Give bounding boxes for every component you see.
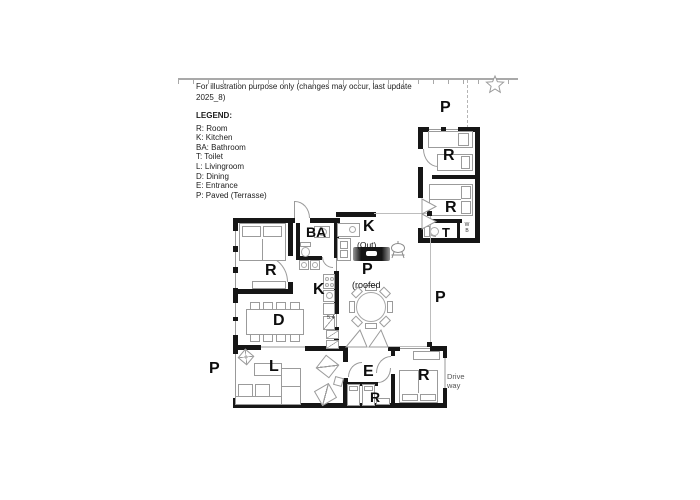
floor-plan-canvas: For illustration purpose only (changes m… (0, 0, 700, 500)
bedroom-right-label: R (418, 368, 430, 384)
burner (325, 277, 329, 281)
door-leaf (294, 201, 295, 218)
legend-item: P: Paved (Terrasse) (196, 191, 267, 201)
toilet-bowl (430, 227, 439, 236)
paved-label-top: P (440, 100, 451, 116)
sofa-back (235, 396, 285, 405)
counter-unit (340, 250, 348, 258)
wall-segment (432, 175, 475, 179)
sofa-seat (238, 384, 253, 397)
annotation-line: For illustration purpose only (changes m… (196, 82, 446, 93)
terrace-post (427, 342, 432, 347)
legend-item: K: Kitchen (196, 133, 267, 143)
pillow (402, 394, 418, 401)
pillow (263, 226, 282, 237)
annotation-line: 2025_8) (196, 93, 446, 104)
counter-unit (340, 241, 348, 249)
room-label-annex-toilet: T (442, 226, 450, 239)
driveway-line: Drive (447, 372, 465, 381)
closet-label: W B (463, 222, 471, 234)
sink-basin (349, 226, 356, 233)
chair (276, 302, 286, 310)
window (233, 231, 238, 246)
paved-label-left: P (209, 361, 220, 377)
dining-label: D (273, 313, 285, 329)
wall-segment (391, 374, 395, 408)
driveway-label: Drive way (447, 372, 465, 390)
utility-box (326, 340, 339, 349)
wall-segment (457, 221, 460, 240)
window (233, 252, 238, 267)
legend-item: L: Livingroom (196, 162, 267, 172)
room-label-annex-r2: R (445, 200, 457, 216)
wall-segment (233, 289, 293, 294)
entrance-label: E (363, 364, 374, 380)
pillow (461, 186, 471, 199)
boundary-dashed-line (467, 80, 468, 128)
burner (325, 283, 329, 287)
chair (349, 301, 355, 313)
round-table (356, 292, 386, 322)
legend-item: D: Dining (196, 172, 267, 182)
burner (330, 283, 334, 287)
lamp (238, 349, 255, 366)
paved-label-right: P (435, 290, 446, 306)
door-arc (348, 362, 362, 377)
terrace-note: (roofed (352, 281, 381, 290)
chair (250, 334, 260, 342)
pillow (461, 156, 470, 169)
entrance-door-leaf (369, 330, 388, 347)
washer-drum (301, 262, 307, 268)
wall-segment (233, 289, 238, 349)
door-arc (423, 149, 438, 167)
terrace-edge (388, 346, 431, 347)
chair (387, 301, 393, 313)
burner (330, 277, 334, 281)
living-label: L (269, 359, 279, 375)
wall-segment (418, 228, 423, 243)
toilet-bowl (301, 247, 310, 257)
chair (263, 302, 273, 310)
legend-item: E: Entrance (196, 181, 267, 191)
annotation: For illustration purpose only (changes m… (196, 82, 446, 103)
washer-drum (312, 262, 318, 268)
room-label-annex-r1: R (443, 148, 455, 164)
wall-segment (288, 218, 293, 256)
kitchen-label: K (313, 282, 325, 298)
pillow (242, 226, 261, 237)
chair (290, 302, 300, 310)
wall-segment (288, 282, 293, 294)
wall-segment (418, 167, 423, 198)
chair (365, 323, 377, 329)
sofa-line (282, 386, 300, 387)
wall-segment (343, 346, 348, 362)
terrace-paved-label: P (362, 262, 373, 278)
bathroom-label: BA (306, 225, 326, 239)
legend-item: BA: Bathroom (196, 143, 267, 153)
wall-segment (422, 219, 462, 223)
chair (276, 334, 286, 342)
pillow (420, 394, 436, 401)
entrance-door-leaf (346, 330, 367, 347)
dimension-label: 5.4 (327, 315, 335, 321)
pillow (349, 386, 358, 391)
bench (252, 281, 286, 289)
sofa-seat (255, 384, 270, 397)
bbq-icon (392, 241, 405, 258)
grill-detail (366, 251, 377, 256)
bedroom-small-label: R (370, 390, 380, 404)
door-arc (376, 356, 391, 373)
driveway-line: way (447, 381, 465, 390)
wall-segment (391, 351, 395, 356)
wall-segment (418, 127, 423, 149)
pillow (458, 133, 469, 146)
legend-item: R: Room (196, 124, 267, 134)
window (261, 345, 309, 349)
chair (250, 302, 260, 310)
utility-box (326, 330, 339, 339)
terrace-edge (374, 213, 431, 214)
door-arc (322, 257, 333, 268)
wall-segment (475, 127, 480, 243)
window (233, 273, 238, 288)
bed-split-line (262, 239, 263, 260)
terrace-post (427, 211, 432, 216)
legend-item: T: Toilet (196, 152, 267, 162)
window (233, 303, 238, 317)
window (233, 321, 238, 335)
door-arc (295, 201, 310, 218)
terrace-edge (430, 213, 431, 347)
legend-title: LEGEND: (196, 111, 267, 121)
sink-basin (326, 292, 333, 299)
cabinet (413, 351, 440, 360)
chair (290, 334, 300, 342)
outdoor-kitchen-label: K (363, 219, 375, 235)
pillow (461, 201, 471, 214)
chair (263, 334, 273, 342)
outdoor-kitchen-note: (Out) (357, 241, 376, 250)
bedroom-left-label: R (265, 263, 277, 279)
legend: LEGEND: R: Room K: Kitchen BA: Bathroom … (196, 111, 267, 200)
counter-unit (323, 303, 335, 315)
lounge-chair (316, 355, 340, 379)
wall-segment (336, 212, 376, 217)
